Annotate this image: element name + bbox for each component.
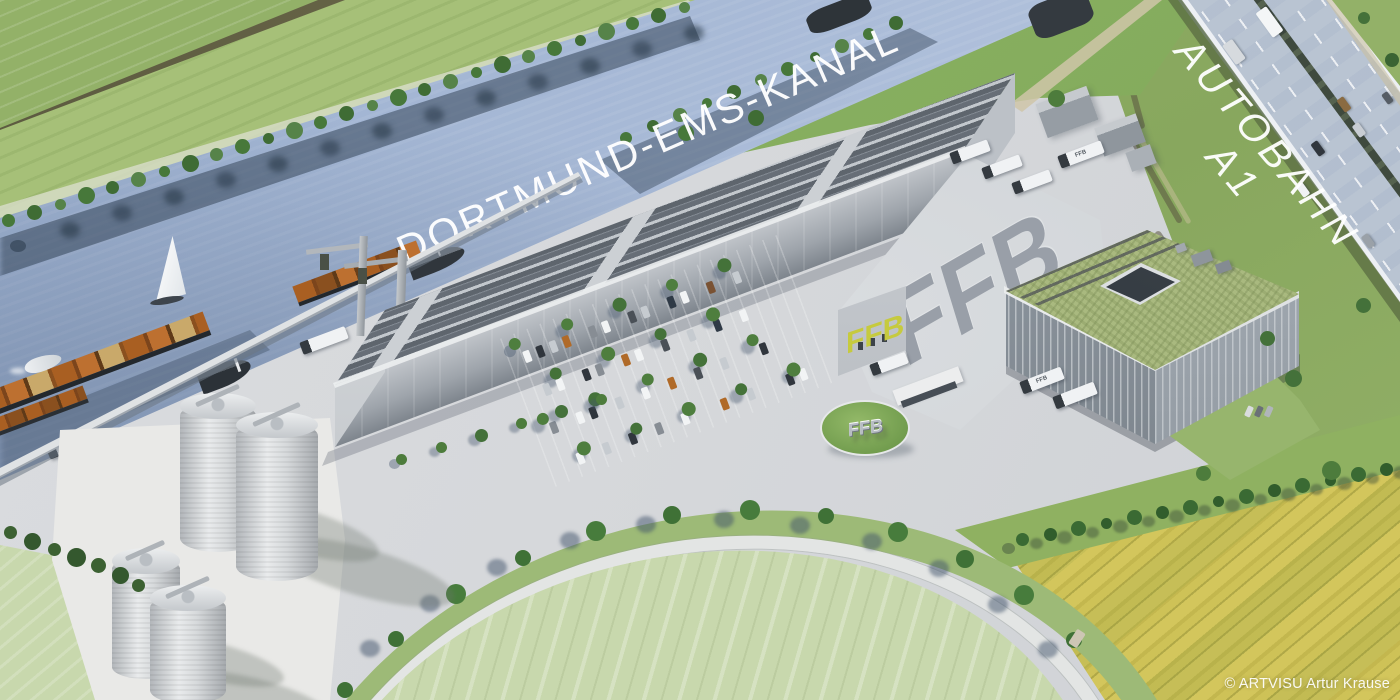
tree-reflections [10, 240, 26, 252]
street-trees [396, 454, 407, 465]
field-tree-row [1016, 533, 1029, 546]
island-logo: FFB [848, 415, 883, 441]
silo-cap [150, 585, 226, 611]
boat-wake [10, 368, 26, 374]
corner-trees [1358, 12, 1370, 24]
credit-line: © ARTVISU Artur Krause [1224, 676, 1390, 692]
silo-cap [180, 393, 256, 419]
crane-trolley [358, 268, 367, 284]
road-tree-row [337, 682, 353, 698]
silo-cap [236, 412, 318, 438]
tree-shadows [1002, 543, 1015, 554]
crane-trolley [320, 254, 329, 270]
logo-island: FFB [820, 400, 910, 456]
storage-silo [236, 421, 318, 581]
aerial-rendering: DORTMUND-EMS-KANAL AUTOBAHN A1 FFB FFB [0, 0, 1400, 700]
canal-tree-row [2, 214, 15, 227]
storage-silo [150, 594, 226, 700]
silo-cap [112, 548, 180, 574]
office-trees [1196, 466, 1211, 481]
bushes [4, 526, 17, 539]
